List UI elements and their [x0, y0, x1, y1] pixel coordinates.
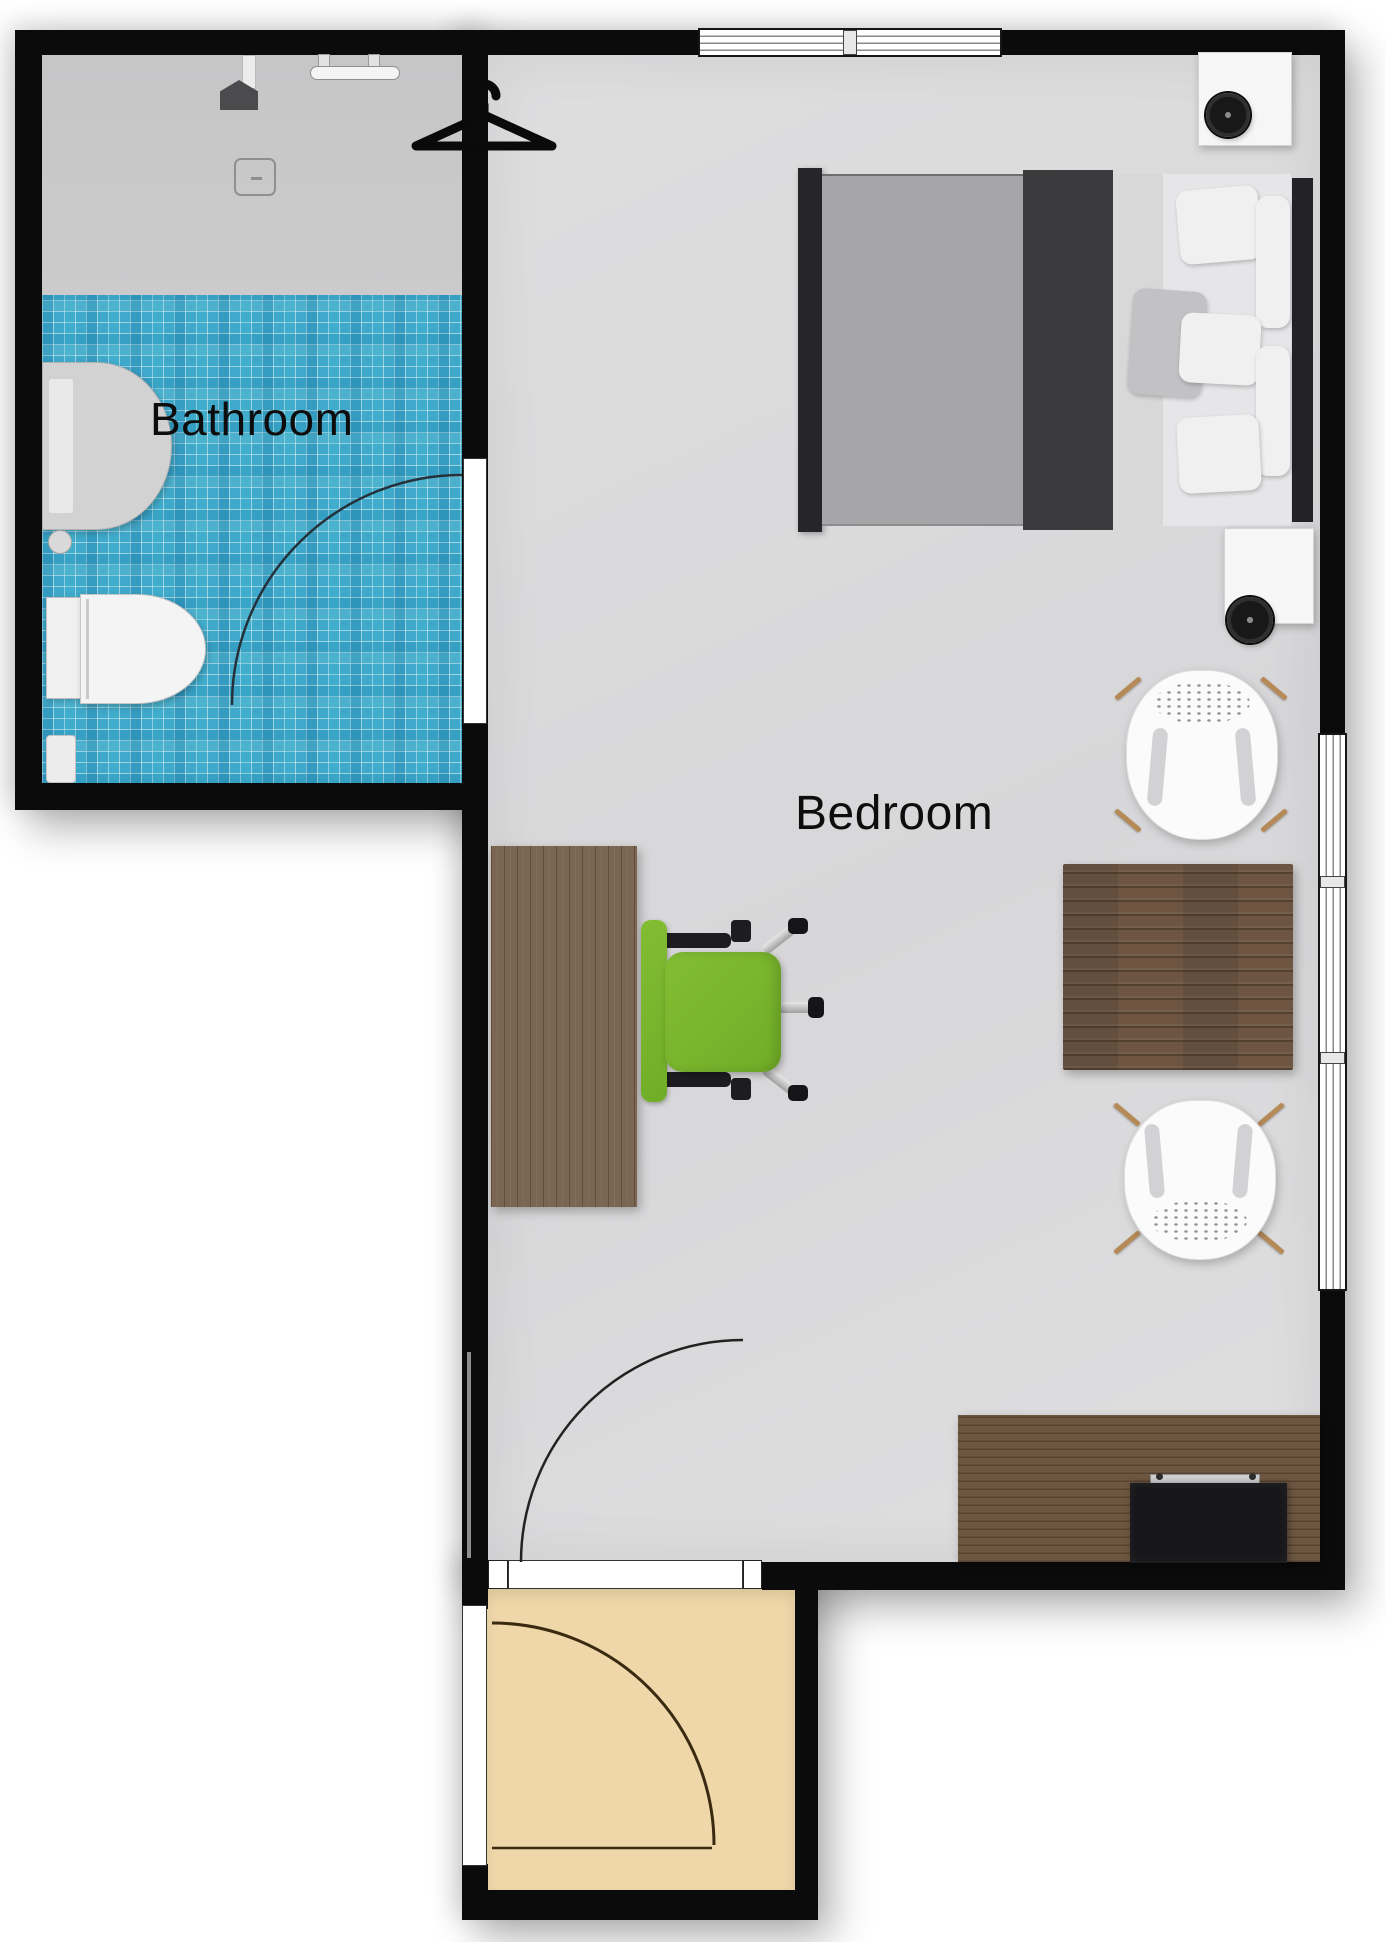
towel-rail	[310, 66, 400, 80]
bed-footboard	[798, 168, 822, 532]
sink-trap	[48, 530, 72, 554]
waste-bin	[46, 735, 76, 783]
pillow	[1176, 414, 1262, 494]
chair-leg	[1114, 676, 1142, 700]
round-speaker	[1206, 93, 1250, 137]
wall-entry-right	[795, 1562, 818, 1920]
entry-sidelight-frame	[462, 1605, 487, 1866]
bathroom-door-frame	[463, 458, 487, 724]
wall-top	[15, 30, 1345, 55]
soundbar-knob	[1249, 1473, 1256, 1480]
chair-leg	[1113, 1102, 1141, 1126]
round-speaker	[1227, 597, 1273, 643]
chair-perforation-pattern	[1154, 682, 1250, 724]
wall-bathroom-left	[15, 30, 42, 810]
chair-leg	[1257, 1102, 1285, 1126]
bed-duvet	[1023, 170, 1113, 530]
bathroom-label: Bathroom	[150, 392, 353, 446]
door-post-right	[743, 1560, 762, 1589]
floor-plan: Bathroom Bedroom	[0, 0, 1385, 1942]
right-window-divider-2	[1320, 1052, 1345, 1064]
tv	[1130, 1483, 1287, 1563]
chair-backrest	[641, 920, 667, 1102]
bedroom-entry-door-sill	[508, 1560, 743, 1589]
bed-sheet	[822, 174, 1023, 526]
wall-bedroom-bottom	[762, 1562, 1345, 1590]
clothes-hanger-icon	[408, 70, 560, 156]
desk	[491, 846, 637, 1207]
wall-entry-bottom	[462, 1890, 818, 1920]
chair-armrest-elbow	[731, 920, 751, 942]
right-window-divider-1	[1320, 876, 1345, 888]
double-bed	[798, 168, 1313, 532]
dining-table	[1063, 864, 1293, 1070]
entry-floor	[485, 1587, 795, 1890]
top-window-divider	[843, 30, 857, 55]
door-post-left	[488, 1560, 508, 1589]
drain-slot	[251, 177, 262, 180]
chair-caster	[788, 1085, 808, 1101]
sink-basin	[49, 379, 73, 513]
chair-seat	[665, 952, 781, 1072]
pillow	[1175, 185, 1263, 266]
chair-leg	[1113, 1230, 1141, 1254]
wall-bathroom-bottom	[15, 783, 488, 810]
chair-caster	[808, 997, 824, 1018]
chair-leg	[1257, 1230, 1285, 1254]
chair-leg	[1260, 676, 1288, 700]
toilet-seat-seam	[86, 599, 89, 699]
bed-headboard	[1292, 178, 1313, 522]
pillow	[1178, 312, 1262, 386]
toilet-tank	[46, 597, 82, 699]
right-window	[1318, 733, 1347, 1291]
soundbar-knob	[1156, 1473, 1163, 1480]
chair-caster	[788, 918, 808, 934]
chair-leg	[1260, 808, 1288, 832]
wall-entry-block-bottom	[462, 1864, 488, 1892]
chair-perforation-pattern	[1151, 1200, 1247, 1242]
office-chair	[641, 915, 831, 1107]
pillow	[1256, 346, 1290, 476]
bedroom-label: Bedroom	[795, 786, 993, 841]
chair-armrest-elbow	[731, 1078, 751, 1100]
shell-side-chair-bottom	[1117, 1098, 1281, 1262]
wall-middle-vertical	[462, 30, 488, 1587]
pillow	[1256, 196, 1290, 328]
floor-drain-icon	[234, 158, 276, 196]
shell-side-chair-top	[1118, 666, 1284, 844]
chair-leg	[1114, 808, 1142, 832]
